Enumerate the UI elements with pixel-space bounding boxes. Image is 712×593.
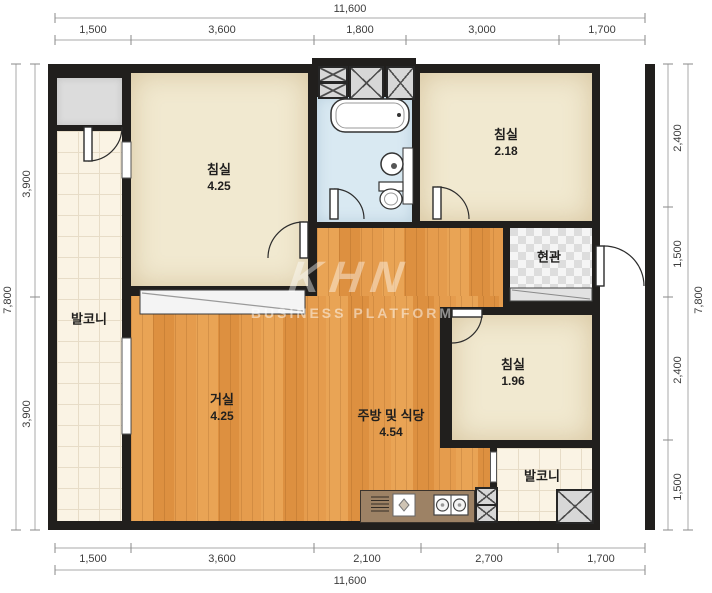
door-balcony-closet [84, 127, 122, 161]
room-label-living: 거실 4.25 [210, 392, 234, 424]
room-area: 2.18 [494, 144, 518, 160]
room-name: 침실 [494, 127, 518, 144]
watermark-logo: KHN [254, 253, 446, 303]
bathtub-icon [331, 99, 409, 132]
room-label-entrance: 현관 [537, 250, 561, 267]
room-name: 발코니 [524, 469, 560, 486]
room-name: 거실 [210, 392, 234, 409]
room-label-balcony-br: 발코니 [524, 469, 560, 486]
vent-grill-icon [371, 497, 389, 511]
balcony-br-window [491, 452, 497, 482]
floor-plan-canvas: 11,600 1,500 3,600 1,800 3,000 1,700 1,5… [0, 0, 712, 593]
washbasin-icon [381, 153, 403, 175]
room-name: 침실 [501, 357, 525, 374]
watermark-subtitle: BUSINESS PLATFORM [240, 305, 465, 321]
balcony-window-lower [122, 338, 131, 434]
room-name: 발코니 [71, 312, 107, 329]
balcony-window-upper [122, 142, 131, 178]
room-area: 4.25 [207, 179, 231, 195]
toilet-icon [379, 182, 403, 209]
room-name: 침실 [207, 162, 231, 179]
shoe-cabinet-symbol [510, 288, 592, 301]
stove-icon [434, 495, 468, 515]
room-label-bedroom-tr: 침실 2.18 [494, 127, 518, 159]
room-name: 주방 및 식당 [357, 408, 424, 425]
kitchen-sink-icon [393, 494, 415, 516]
door-entrance [596, 246, 644, 286]
room-name: 현관 [537, 250, 561, 267]
door-bathroom [330, 189, 364, 219]
room-label-bedroom-r: 침실 1.96 [501, 357, 525, 389]
room-area: 1.96 [501, 374, 525, 390]
door-bedroom-tr [433, 187, 469, 219]
room-label-kitchen: 주방 및 식당 4.54 [357, 408, 424, 440]
room-label-balcony-left: 발코니 [71, 312, 107, 329]
room-area: 4.25 [210, 409, 234, 425]
bath-partition [403, 148, 413, 204]
room-label-bedroom-tl: 침실 4.25 [207, 162, 231, 194]
room-area: 4.54 [357, 425, 424, 441]
